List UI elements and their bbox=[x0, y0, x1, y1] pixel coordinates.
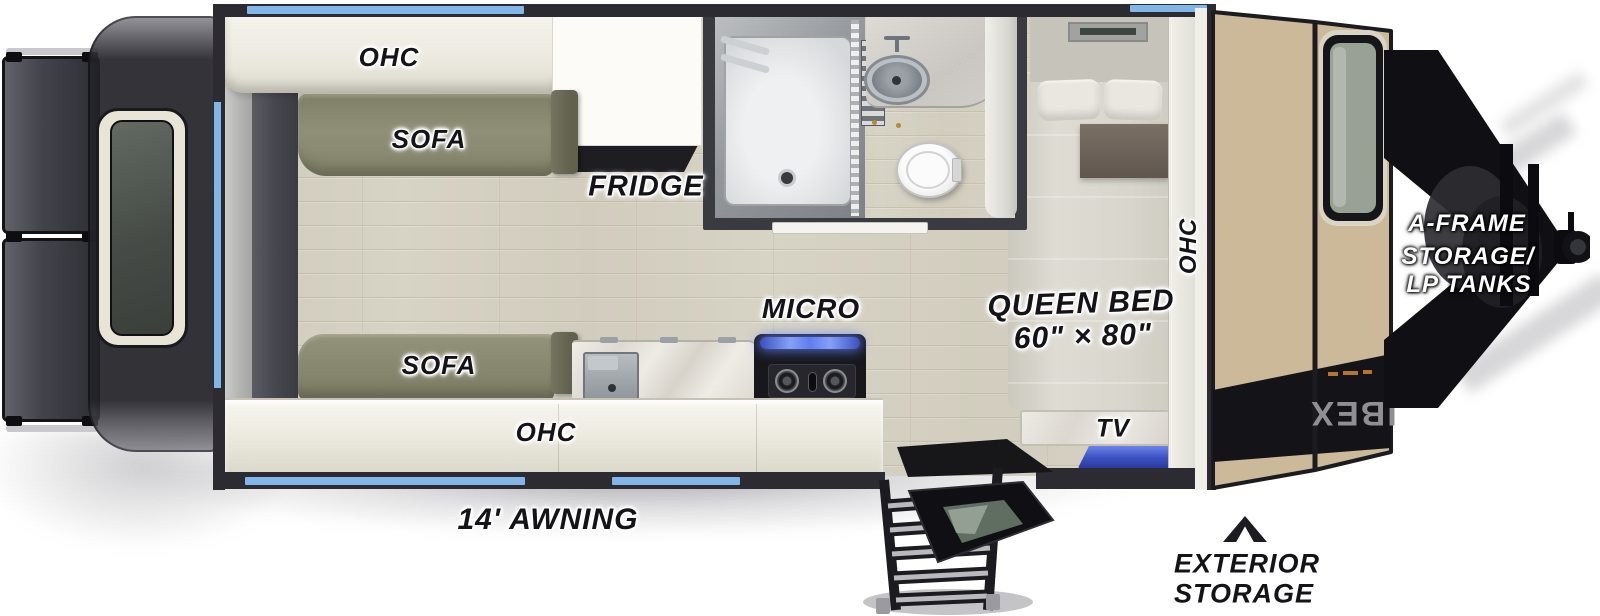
pillow bbox=[1103, 79, 1162, 121]
rear-interior-wall bbox=[222, 88, 252, 402]
label-queen-bed-size: 60" × 80" bbox=[1013, 320, 1152, 355]
sink-drain bbox=[892, 76, 901, 85]
label-fridge: FRIDGE bbox=[588, 173, 704, 202]
label-ohc-top: OHC bbox=[359, 44, 420, 70]
rack-clamp bbox=[6, 52, 22, 62]
rack-clamp bbox=[6, 232, 22, 242]
kitchen-sink-drain bbox=[608, 384, 616, 392]
vanity-knob bbox=[896, 123, 901, 128]
window bbox=[245, 477, 525, 485]
cabinet-seam bbox=[756, 404, 757, 474]
bathroom-sliding-door bbox=[772, 222, 928, 234]
vanity-knob bbox=[872, 120, 877, 125]
label-sofa-top: SOFA bbox=[392, 126, 467, 152]
burner-icon bbox=[775, 369, 799, 393]
counter-hinge bbox=[660, 337, 678, 343]
stove-burners bbox=[768, 364, 856, 398]
counter-hinge bbox=[718, 337, 736, 343]
counter-hinge bbox=[600, 337, 618, 343]
rear-window-glass bbox=[110, 120, 174, 336]
shower-drain bbox=[781, 172, 793, 184]
rear-window-accent bbox=[214, 102, 221, 388]
queen-bed bbox=[1008, 72, 1170, 410]
label-aframe-line2: STORAGE/ bbox=[1402, 245, 1535, 269]
label-exterior-storage-line1: EXTERIOR bbox=[1174, 551, 1320, 578]
shower-glass bbox=[851, 20, 859, 216]
label-aframe-line3: LP TANKS bbox=[1406, 273, 1531, 297]
label-ohc-bottom: OHC bbox=[516, 419, 577, 445]
label-tv: TV bbox=[1096, 417, 1130, 442]
rear-wardrobe-panel bbox=[252, 92, 298, 398]
rear-storage-panel bbox=[2, 56, 100, 234]
bathroom-wall bbox=[985, 16, 1017, 218]
label-exterior-storage-line2: STORAGE bbox=[1174, 581, 1314, 608]
toilet-seat bbox=[906, 151, 950, 189]
microwave-led bbox=[760, 337, 860, 349]
pillow bbox=[1037, 79, 1100, 121]
rear-storage-panel bbox=[2, 238, 100, 422]
label-sofa-bottom: SOFA bbox=[402, 352, 477, 378]
label-ohc-front: OHC bbox=[1177, 218, 1201, 274]
window bbox=[247, 6, 524, 14]
burner-icon bbox=[823, 369, 847, 393]
toilet-hinge bbox=[952, 158, 962, 182]
rear-rack-edge bbox=[6, 425, 98, 432]
kitchen-sink-lid bbox=[588, 356, 618, 370]
roof-vent-slot bbox=[1080, 28, 1136, 35]
label-micro: MICRO bbox=[762, 295, 860, 323]
faucet-icon bbox=[895, 36, 899, 52]
tv-unit bbox=[1078, 446, 1170, 468]
floorplan-canvas: IBEX OHC SOFA FRIDGE MICRO QUEEN BED 60"… bbox=[0, 0, 1600, 616]
window bbox=[612, 477, 740, 485]
sofa-armrest bbox=[551, 90, 578, 174]
label-aframe-line1: A-FRAME bbox=[1408, 212, 1526, 236]
rack-clamp bbox=[6, 416, 22, 426]
bed-runner bbox=[1080, 124, 1170, 178]
stove-knob-slot bbox=[808, 372, 817, 392]
entry-door-steps bbox=[840, 430, 1070, 616]
label-awning: 14' AWNING bbox=[457, 505, 638, 535]
